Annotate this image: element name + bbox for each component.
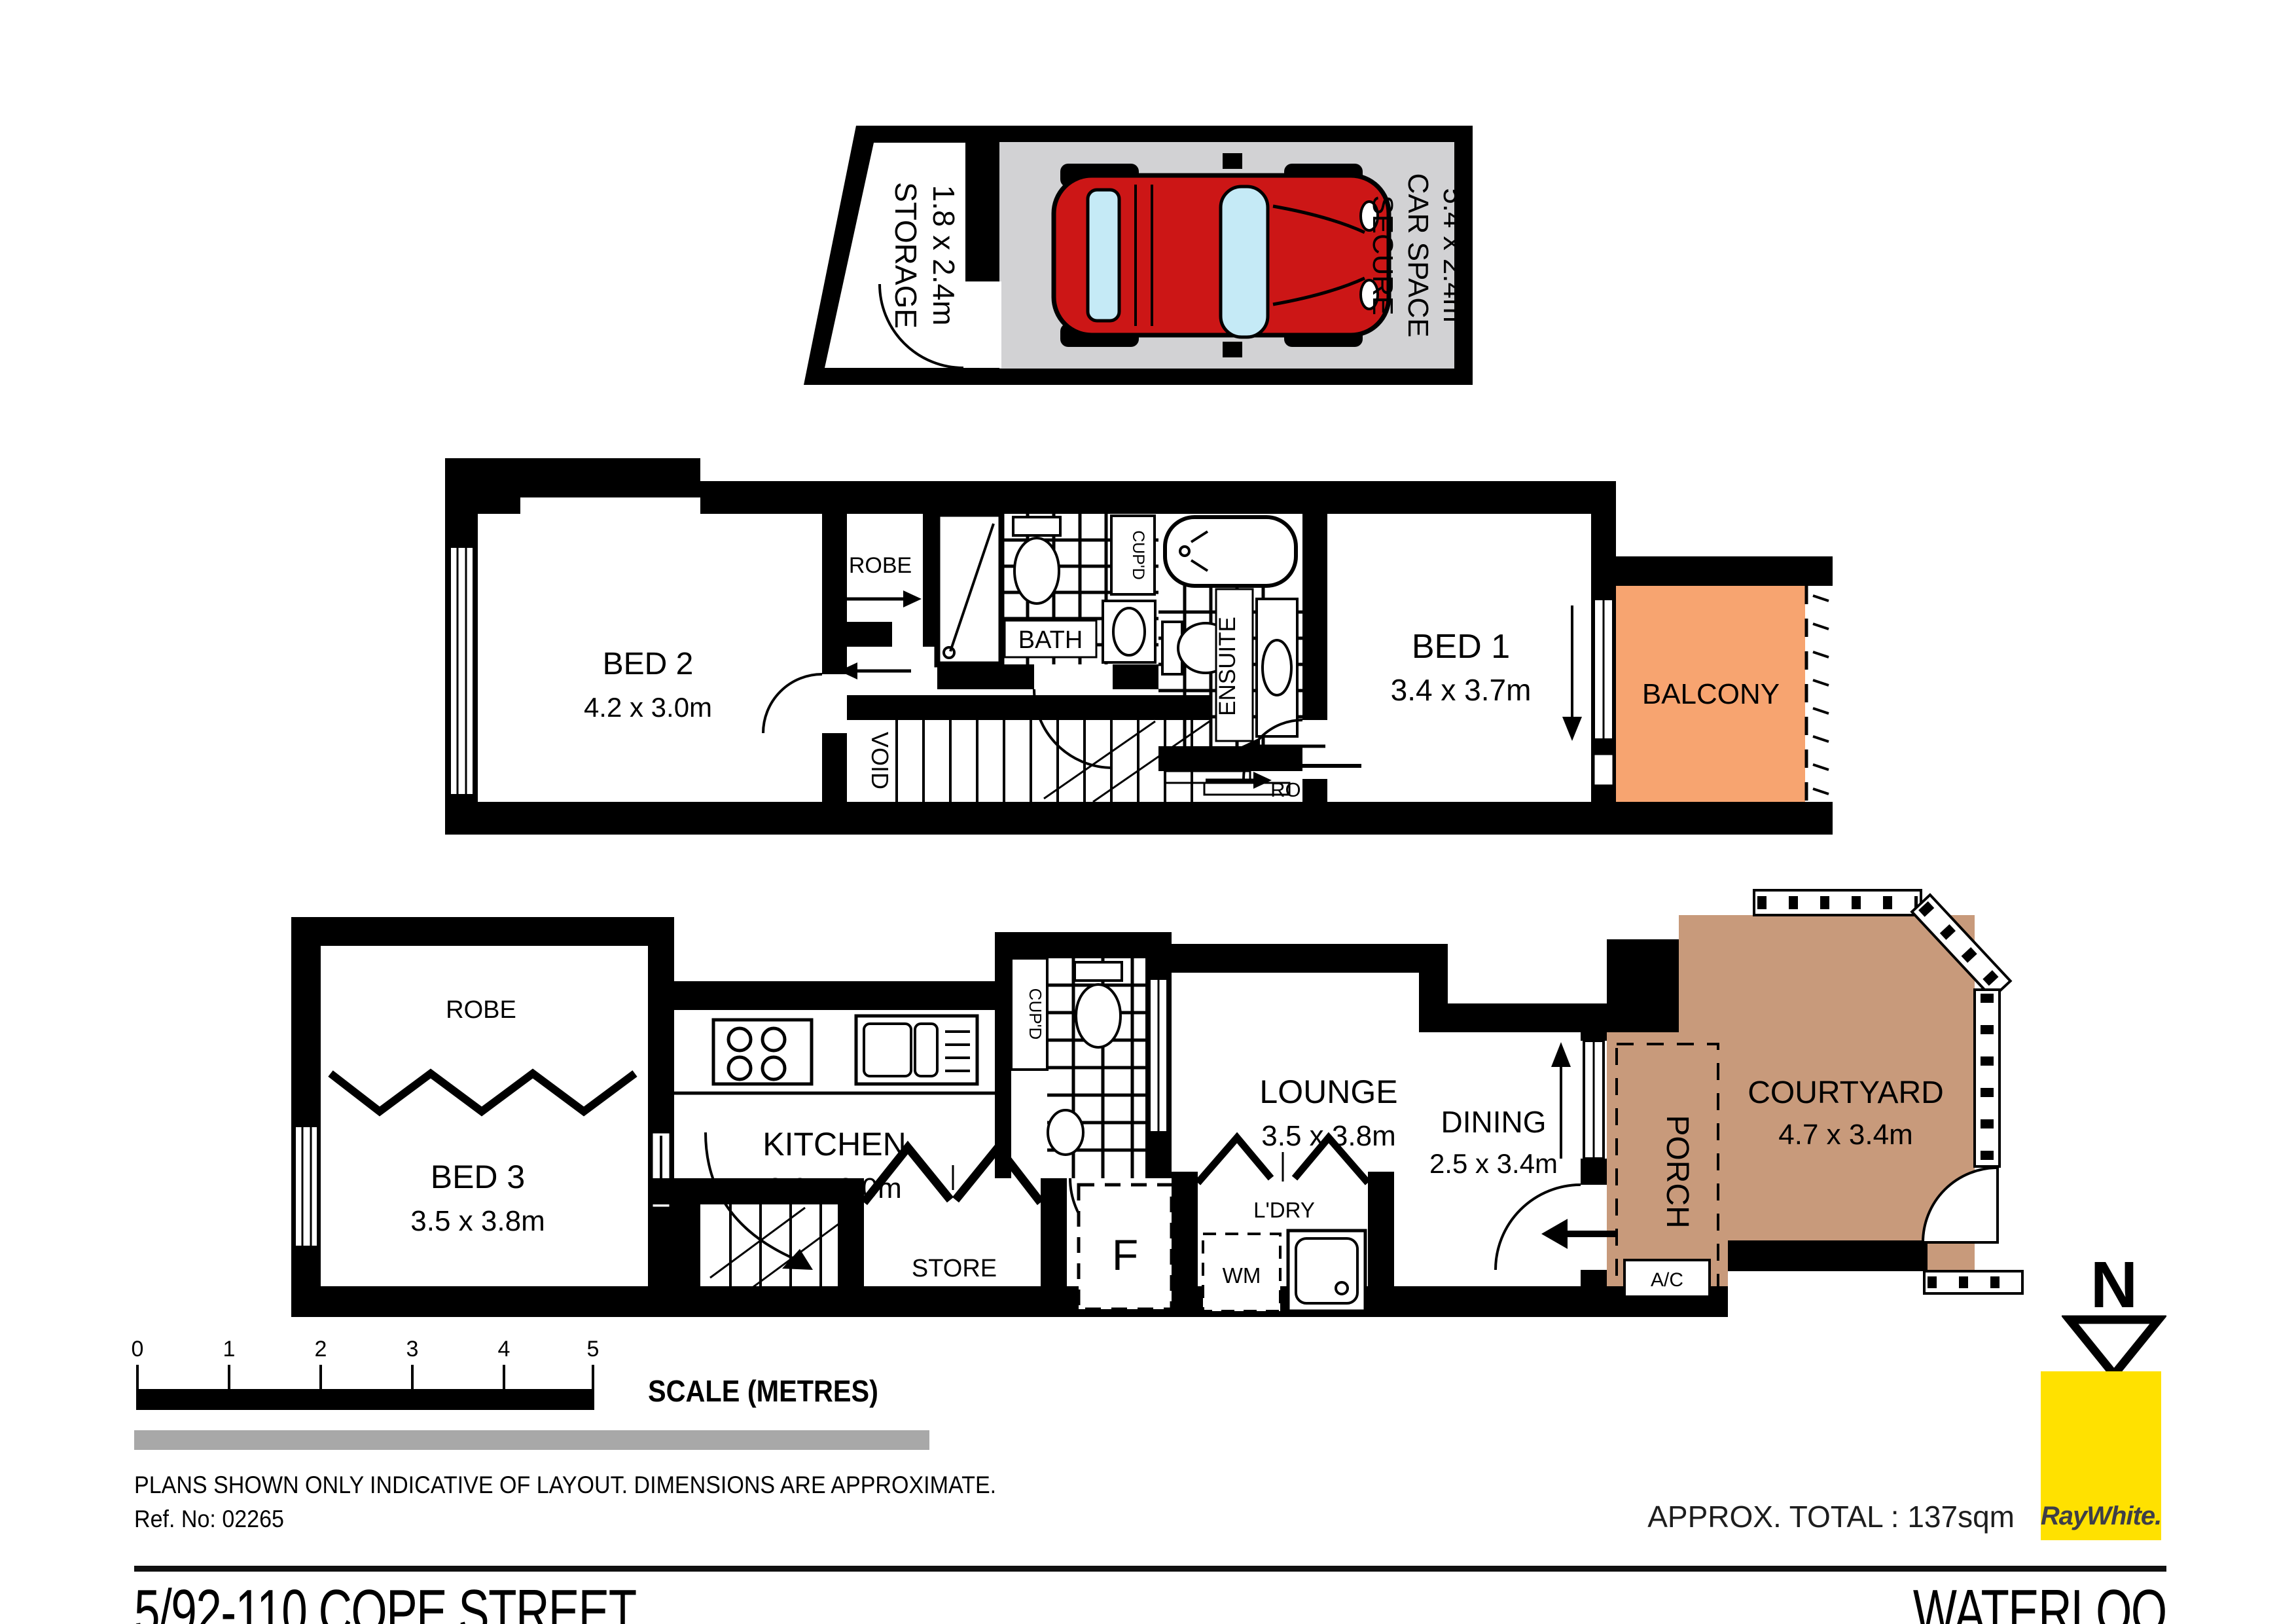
wall — [445, 802, 1833, 835]
window — [1584, 1041, 1604, 1159]
wall — [1616, 556, 1833, 586]
garage-section: STORAGE 1.8 x 2.4m SECURE CAR SPACE 5.4 … — [798, 124, 1473, 386]
entry-arrow-head — [1541, 1219, 1568, 1249]
fridge-label: F — [1112, 1231, 1138, 1279]
door-arc — [1496, 1185, 1581, 1270]
robe1-label: ROBE — [1270, 778, 1328, 801]
wall — [1172, 944, 1419, 973]
bed1-dims: 3.4 x 3.7m — [1391, 673, 1532, 707]
basin — [1048, 1110, 1083, 1155]
bed1-label: BED 1 — [1412, 628, 1510, 666]
window-arrow-head — [1551, 1042, 1571, 1067]
floorplan-page: STORAGE 1.8 x 2.4m SECURE CAR SPACE 5.4 … — [0, 0, 2296, 1624]
bed3-dims: 3.5 x 3.8m — [410, 1205, 545, 1237]
cupd-label: CUP'D — [1129, 530, 1147, 580]
carspace-label-1: SECURE — [1367, 195, 1399, 315]
wall — [1728, 1240, 1928, 1271]
kitchen-dims: 3.6 x 3.0m — [767, 1172, 901, 1204]
wall — [937, 664, 1034, 689]
window — [450, 547, 474, 795]
wall — [1607, 939, 1679, 1032]
north-indicator: N — [2062, 1255, 2166, 1383]
wall — [445, 458, 700, 483]
bed3-label: BED 3 — [431, 1159, 526, 1195]
wall — [291, 917, 674, 946]
cupd-lower-label: CUP'D — [1026, 988, 1045, 1040]
north-arrow-icon — [2062, 1314, 2166, 1380]
window-arrow-head — [1562, 717, 1582, 741]
laundry-label: L'DRY — [1253, 1198, 1315, 1222]
bath-label: BATH — [1018, 626, 1083, 654]
carspace-dims: 5.4 x 2.4m — [1437, 188, 1469, 322]
storage-door-gap — [963, 281, 1001, 368]
toilet — [1013, 517, 1060, 604]
upper-floor: ROBE CUP'D — [445, 458, 1833, 835]
void-label: VOID — [867, 732, 893, 789]
lounge-label: LOUNGE — [1259, 1074, 1397, 1110]
footer-suburb: WATERLOO — [1913, 1576, 2166, 1624]
disclaimer-line: PLANS SHOWN ONLY INDICATIVE OF LAYOUT. D… — [134, 1471, 996, 1499]
wall — [648, 917, 674, 1317]
porch-label: PORCH — [1660, 1115, 1695, 1228]
scale-title: SCALE (METRES) — [648, 1373, 878, 1409]
wall — [1113, 664, 1158, 689]
store-label: STORE — [912, 1255, 997, 1282]
wall — [674, 1204, 700, 1317]
bathtub — [1165, 517, 1296, 586]
scale-tick: 1 — [223, 1337, 236, 1362]
wm-label: WM — [1223, 1263, 1261, 1288]
door-arc — [763, 674, 822, 733]
approx-total: APPROX. TOTAL : 137sqm — [1647, 1499, 2015, 1534]
toilet — [1075, 962, 1122, 981]
scale-tick: 0 — [132, 1337, 144, 1362]
footer-divider — [134, 1566, 2166, 1572]
wall — [822, 514, 847, 674]
north-letter: N — [2062, 1255, 2166, 1314]
wall — [1581, 1159, 1607, 1185]
courtyard-label: COURTYARD — [1748, 1075, 1944, 1110]
wall — [1581, 1270, 1607, 1317]
bath-labelbox: BATH — [1005, 621, 1096, 657]
wall — [291, 917, 321, 1317]
bed2-label: BED 2 — [603, 647, 694, 681]
bed2-dims: 4.2 x 3.0m — [584, 692, 712, 723]
fridge: F — [1079, 1185, 1172, 1309]
robe2-label: ROBE — [849, 553, 912, 578]
kitchen-bench — [674, 1016, 995, 1093]
wall — [1302, 514, 1327, 720]
raywhite-logo: RayWhite. — [2041, 1371, 2161, 1540]
balcony-hatch — [1813, 596, 1829, 794]
scale-tick: 4 — [498, 1337, 511, 1362]
wall — [995, 932, 1011, 1178]
window — [1149, 979, 1168, 1132]
robe3-label: ROBE — [446, 996, 516, 1024]
window — [1594, 599, 1613, 785]
wall — [1581, 1003, 1607, 1041]
lower-floor: ROBE CUP'D — [281, 877, 2049, 1362]
cupboard: CUP'D — [1111, 516, 1155, 594]
lounge-dims: 3.5 x 3.8m — [1261, 1120, 1395, 1152]
scale-tick: 2 — [315, 1337, 327, 1362]
gray-divider-bar — [134, 1430, 929, 1450]
balcony-label: BALCONY — [1642, 678, 1780, 710]
window — [295, 1126, 318, 1247]
kitchen-label: KITCHEN — [762, 1126, 906, 1163]
shower — [937, 514, 1001, 664]
stair-arrow-head — [782, 1249, 813, 1270]
storage-dims: 1.8 x 2.4m — [927, 185, 961, 326]
wall — [648, 981, 995, 1010]
scale-tick: 3 — [406, 1337, 419, 1362]
scale-tick: 5 — [587, 1337, 600, 1362]
raywhite-logo-text: RayWhite. — [2041, 1502, 2161, 1540]
robe3-rail — [331, 1074, 635, 1111]
courtyard-dims: 4.7 x 3.4m — [1778, 1119, 1912, 1151]
vanity — [1103, 601, 1155, 662]
toilet — [1076, 984, 1121, 1047]
disclaimer-ref: Ref. No: 02265 — [134, 1506, 284, 1533]
wall — [822, 733, 847, 802]
ac-label: A/C — [1651, 1269, 1683, 1291]
car-icon — [1054, 153, 1389, 357]
wall — [995, 932, 1172, 958]
carspace-label-2: CAR SPACE — [1402, 173, 1434, 337]
dining-dims: 2.5 x 3.4m — [1429, 1148, 1558, 1179]
wall — [847, 695, 1211, 720]
wall — [291, 1286, 1728, 1317]
storage-label: STORAGE — [889, 182, 923, 329]
dining-label: DINING — [1441, 1105, 1547, 1139]
wall-notch — [520, 497, 700, 514]
scale-bar: 0 1 2 3 4 5 — [131, 1329, 628, 1417]
footer-address: 5/92-110 COPE STREET — [134, 1576, 636, 1624]
ensuite-label: ENSUITE — [1215, 617, 1240, 716]
robe2-closet: ROBE — [834, 514, 937, 679]
